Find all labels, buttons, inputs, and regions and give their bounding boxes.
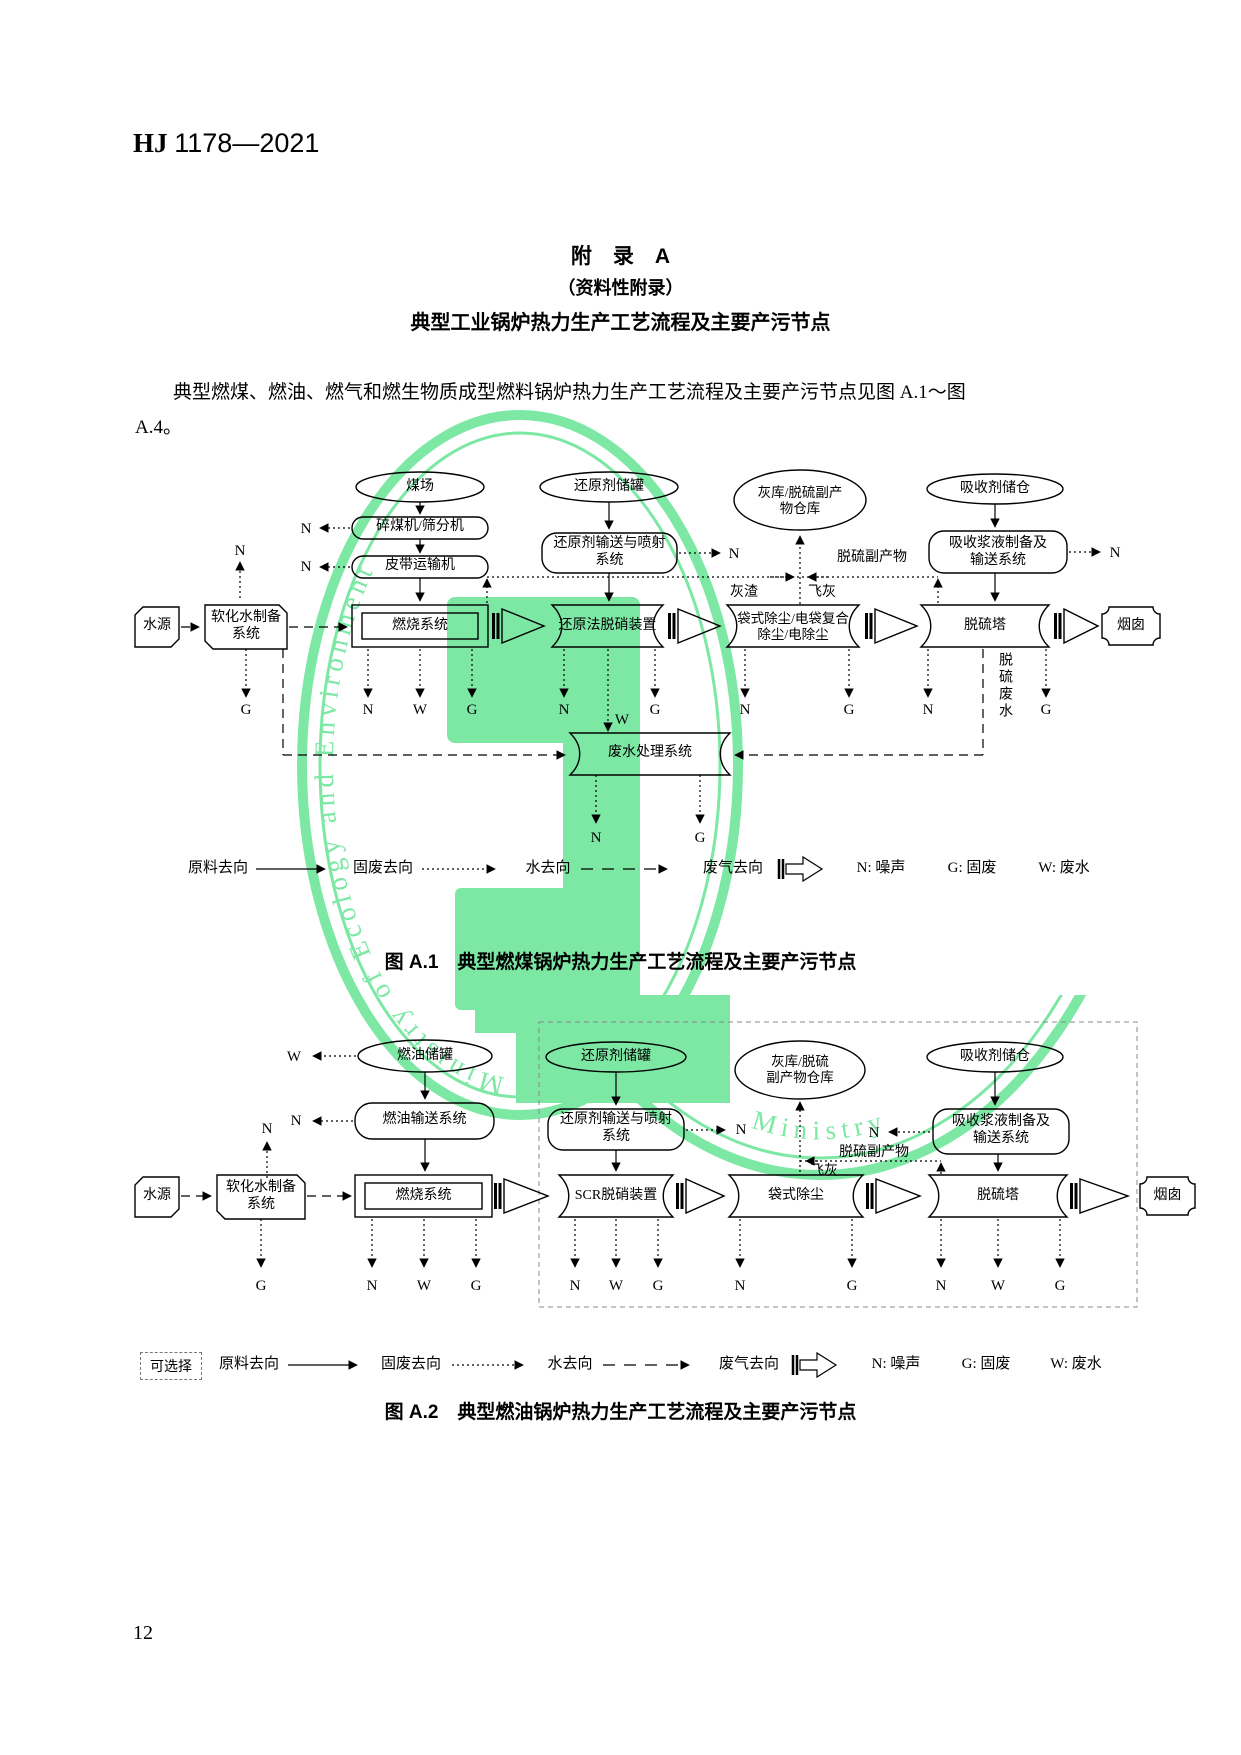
noise-mark: N [232, 543, 248, 560]
solid-waste-mark: G [692, 830, 708, 847]
node-coal-yard: 煤场 [356, 480, 484, 495]
standard-code: HJ 1178—2021 [133, 128, 319, 159]
solid-waste-mark: G [238, 702, 254, 719]
noise-mark: N [259, 1121, 275, 1138]
label-fly-ash: 飞灰 [804, 586, 840, 601]
noise-mark: N [732, 1278, 748, 1295]
solid-waste-mark: G [844, 1278, 860, 1295]
node-slurry-line1: 吸收浆液制备及 [949, 536, 1047, 553]
node-ash-store-a2-line1: 灰库/脱硫 [771, 1054, 829, 1070]
node-soft-water: 软化水制备 系统 [205, 610, 287, 644]
node-scr: SCR脱硝装置 [559, 1188, 673, 1204]
noise-mark: N [920, 702, 936, 719]
node-oil-transfer: 燃油输送系统 [355, 1112, 494, 1128]
node-water-source: 水源 [135, 618, 179, 634]
node-denitration: 还原法脱硝装置 [552, 618, 663, 634]
solid-waste-mark: G [253, 1278, 269, 1295]
node-slurry-a2-line2: 输送系统 [973, 1131, 1029, 1148]
node-reductant-system-line2: 系统 [596, 553, 624, 570]
node-slurry-line2: 输送系统 [970, 553, 1026, 570]
node-reductant-tank: 还原剂储罐 [541, 480, 677, 495]
intro-line2: A.4。 [135, 417, 182, 438]
label-desulf-byproduct-a2: 脱硫副产物 [833, 1146, 915, 1161]
node-slurry-a2-line1: 吸收浆液制备及 [952, 1114, 1050, 1131]
node-chimney-a2: 烟囱 [1140, 1188, 1195, 1204]
noise-mark: N [737, 702, 753, 719]
node-chimney: 烟囱 [1102, 618, 1160, 634]
node-water-source-a2: 水源 [135, 1188, 179, 1204]
node-ash-store-line2: 物仓库 [780, 501, 821, 517]
node-reductant-tank-a2: 还原剂储罐 [546, 1050, 686, 1065]
node-ash-store-a2: 灰库/脱硫 副产物仓库 [735, 1053, 865, 1087]
noise-mark: N [733, 1122, 749, 1139]
node-dust-line2: 除尘/电除尘 [757, 627, 828, 643]
noise-mark: N [360, 702, 376, 719]
wastewater-mark: W [412, 702, 428, 719]
label-desulf-byproduct: 脱硫副产物 [830, 551, 914, 566]
figure-a1-caption: 图 A.1 典型燃煤锅炉热力生产工艺流程及主要产污节点 [0, 947, 1241, 974]
node-combustion-a2: 燃烧系统 [365, 1188, 482, 1204]
node-reductant-system: 还原剂输送与喷射 系统 [542, 534, 677, 572]
node-oil-tank: 燃油储罐 [358, 1049, 492, 1064]
node-desulfur-tower-a2: 脱硫塔 [929, 1188, 1067, 1204]
noise-mark: N [933, 1278, 949, 1295]
wastewater-mark: W [416, 1278, 432, 1295]
solid-waste-mark: G [1052, 1278, 1068, 1295]
wastewater-mark: W [990, 1278, 1006, 1295]
node-wastewater-system: 废水处理系统 [570, 745, 730, 761]
legend-solid-key: G: 固废 [934, 861, 1010, 877]
legend-noise-key: N: 噪声 [843, 861, 919, 877]
standard-code-number: 1178—2021 [174, 128, 319, 158]
standard-code-prefix: HJ [133, 128, 168, 158]
legend-water: 水去向 [521, 861, 575, 877]
solid-waste-mark: G [650, 1278, 666, 1295]
node-soft-water-a2: 软化水制备 系统 [217, 1180, 305, 1214]
wastewater-mark: W [608, 1278, 624, 1295]
node-reductant-system-a2-line1: 还原剂输送与喷射 [560, 1112, 672, 1129]
noise-mark: N [588, 830, 604, 847]
appendix-title: 附 录 A [0, 240, 1241, 270]
noise-mark: N [298, 559, 314, 576]
intro-line1: 典型燃煤、燃油、燃气和燃生物质成型燃料锅炉热力生产工艺流程及主要产污节点见图 A… [173, 382, 966, 403]
noise-mark: N [364, 1278, 380, 1295]
node-ash-store-a2-line2: 副产物仓库 [766, 1070, 834, 1086]
node-reductant-system-a2-line2: 系统 [602, 1129, 630, 1146]
solid-waste-mark: G [1038, 702, 1054, 719]
solid-waste-mark: G [468, 1278, 484, 1295]
node-soft-water-line2: 系统 [232, 627, 260, 644]
node-combustion: 燃烧系统 [362, 618, 478, 634]
wastewater-mark: W [286, 1049, 302, 1066]
node-absorbent-silo-a2: 吸收剂储仓 [927, 1050, 1063, 1065]
solid-waste-mark: G [841, 702, 857, 719]
legend-exhaust-a2: 废气去向 [714, 1357, 784, 1373]
legend-exhaust: 废气去向 [698, 861, 768, 877]
legend-optional-box: 可选择 [140, 1352, 202, 1380]
noise-mark: N [298, 521, 314, 538]
noise-mark: N [726, 546, 742, 563]
noise-mark: N [556, 702, 572, 719]
appendix-heading: 典型工业锅炉热力生产工艺流程及主要产污节点 [0, 306, 1241, 335]
legend-water-a2: 水去向 [543, 1357, 597, 1373]
label-desulf-wastewater: 脱硫废水 [994, 652, 1014, 742]
watermark-seal: Ministry of Ecology and Environment Mini… [302, 205, 1155, 1175]
node-ash-store-line1: 灰库/脱硫副产 [758, 485, 843, 501]
document-page: HJ 1178—2021 附 录 A （资料性附录） 典型工业锅炉热力生产工艺流… [0, 0, 1241, 1755]
node-dust-line1: 袋式除尘/电袋复合 [737, 611, 849, 627]
node-crusher: 碎煤机/筛分机 [352, 519, 488, 536]
appendix-subtitle: （资料性附录） [0, 274, 1241, 300]
intro-paragraph: 典型燃煤、燃油、燃气和燃生物质成型燃料锅炉热力生产工艺流程及主要产污节点见图 A… [135, 375, 1110, 445]
node-slurry-system-a2: 吸收浆液制备及 输送系统 [933, 1111, 1069, 1151]
node-absorbent-silo: 吸收剂储仓 [927, 482, 1063, 497]
legend-wastewater-key-a2: W: 废水 [1038, 1357, 1114, 1373]
legend-raw-material: 原料去向 [183, 861, 253, 877]
wastewater-mark: W [614, 712, 630, 729]
legend-solid-waste: 固废去向 [348, 861, 418, 877]
node-desulfur-tower: 脱硫塔 [921, 618, 1049, 634]
legend-wastewater-key: W: 废水 [1026, 861, 1102, 877]
page-number: 12 [133, 1622, 153, 1645]
label-fly-ash-a2: 飞灰 [806, 1165, 842, 1179]
node-reductant-system-a2: 还原剂输送与喷射 系统 [548, 1110, 684, 1148]
figure-a2-caption: 图 A.2 典型燃油锅炉热力生产工艺流程及主要产污节点 [0, 1397, 1241, 1424]
node-reductant-system-line1: 还原剂输送与喷射 [554, 536, 666, 553]
noise-mark: N [288, 1113, 304, 1130]
legend-noise-key-a2: N: 噪声 [858, 1357, 934, 1373]
node-soft-water-a2-line2: 系统 [247, 1197, 275, 1214]
noise-mark: N [1107, 545, 1123, 562]
label-bottom-ash: 灰渣 [726, 586, 762, 601]
legend-solid-key-a2: G: 固废 [948, 1357, 1024, 1373]
solid-waste-mark: G [464, 702, 480, 719]
node-dust-removal-a2: 袋式除尘 [729, 1188, 863, 1204]
node-soft-water-line1: 软化水制备 [211, 610, 281, 627]
node-soft-water-a2-line1: 软化水制备 [226, 1180, 296, 1197]
legend-solid-waste-a2: 固废去向 [376, 1357, 446, 1373]
node-belt-conveyor: 皮带运输机 [352, 558, 488, 575]
legend-raw-material-a2: 原料去向 [214, 1357, 284, 1373]
node-dust-removal: 袋式除尘/电袋复合 除尘/电除尘 [727, 610, 859, 644]
noise-mark: N [866, 1125, 882, 1142]
noise-mark: N [567, 1278, 583, 1295]
solid-waste-mark: G [647, 702, 663, 719]
node-slurry-system: 吸收浆液制备及 输送系统 [929, 534, 1067, 572]
node-ash-store: 灰库/脱硫副产 物仓库 [734, 484, 866, 518]
